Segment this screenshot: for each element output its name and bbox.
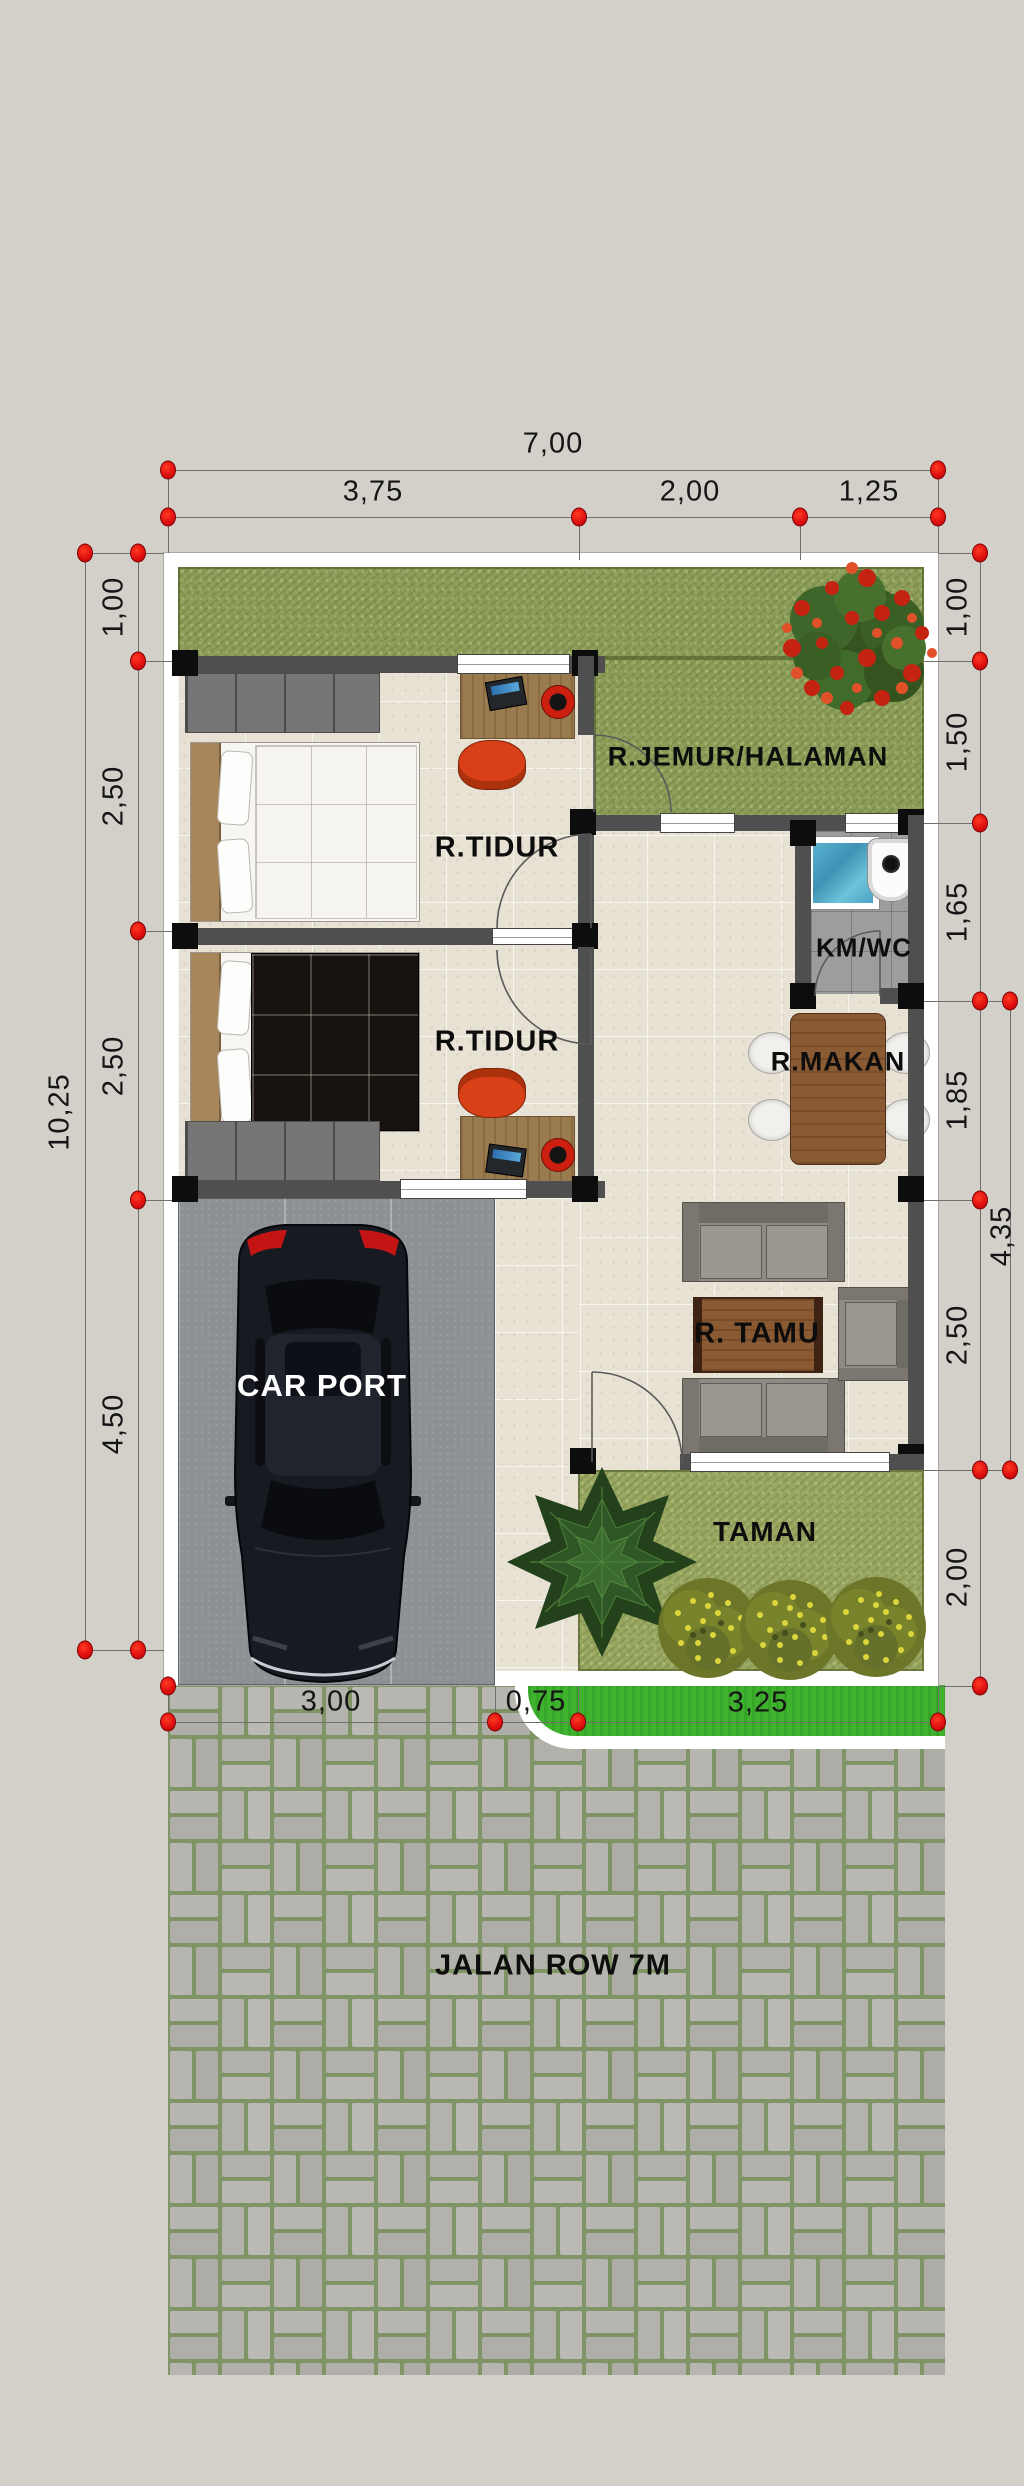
dimension-marker <box>930 461 946 480</box>
dimension-marker <box>130 544 146 563</box>
dimension-marker <box>1002 992 1018 1011</box>
dimension-line <box>168 1722 938 1723</box>
dimension-line <box>85 553 164 554</box>
dimension-marker <box>487 1713 503 1732</box>
dim-left-total: 10,25 <box>44 1073 77 1151</box>
dim-right-seg2: 1,50 <box>942 712 975 772</box>
car <box>225 1218 421 1688</box>
dimension-marker <box>972 814 988 833</box>
dim-bottom-seg2: 0,75 <box>506 1686 566 1719</box>
dim-left-seg4: 4,50 <box>98 1394 131 1454</box>
dim-top-seg1: 3,75 <box>343 476 403 509</box>
dimension-marker <box>792 508 808 527</box>
dimension-line <box>85 1650 164 1651</box>
dimension-line <box>168 470 938 471</box>
dim-top-seg2: 2,00 <box>660 476 720 509</box>
dimension-marker <box>130 1191 146 1210</box>
dimension-line <box>85 553 86 1650</box>
dim-right-seg6: 2,00 <box>942 1547 975 1607</box>
dim-right-seg5: 2,50 <box>942 1305 975 1365</box>
dimension-marker <box>130 652 146 671</box>
dimension-marker <box>972 652 988 671</box>
label-taman: TAMAN <box>713 1516 817 1548</box>
label-makan: R.MAKAN <box>771 1047 906 1078</box>
label-carport: CAR PORT <box>237 1368 407 1404</box>
dimension-marker <box>77 544 93 563</box>
dim-left-seg3: 2,50 <box>98 1036 131 1096</box>
dimension-marker <box>930 508 946 527</box>
dimension-marker <box>77 1641 93 1660</box>
dimension-marker <box>972 1677 988 1696</box>
dimension-marker <box>160 508 176 527</box>
floor-plan-canvas: R.JEMUR/HALAMAN R.TIDUR R.TIDUR KM/WC R.… <box>0 0 1024 2486</box>
dimension-line <box>980 553 981 1686</box>
dimension-line <box>138 553 139 1650</box>
dimension-marker <box>130 1641 146 1660</box>
dimension-marker <box>571 508 587 527</box>
dimension-marker <box>930 1713 946 1732</box>
dimension-marker <box>972 992 988 1011</box>
label-tidur1: R.TIDUR <box>435 832 560 865</box>
label-kmwc: KM/WC <box>816 933 912 964</box>
dim-top-total: 7,00 <box>523 428 583 461</box>
door-arcs <box>0 0 1024 2486</box>
dim-right-seg4: 1,85 <box>942 1070 975 1130</box>
dim-top-seg3: 1,25 <box>839 476 899 509</box>
bush <box>821 1572 931 1682</box>
dimension-marker <box>570 1713 586 1732</box>
dim-bottom-seg1: 3,00 <box>301 1686 361 1719</box>
dimension-marker <box>160 461 176 480</box>
dimension-marker <box>1002 1461 1018 1480</box>
dimension-marker <box>972 1461 988 1480</box>
dimension-marker <box>130 922 146 941</box>
dim-left-seg1: 1,00 <box>98 577 131 637</box>
dim-right-seg3: 1,65 <box>942 882 975 942</box>
dimension-line <box>168 517 938 518</box>
label-jalan: JALAN ROW 7M <box>435 1950 671 1983</box>
label-tamu: R. TAMU <box>694 1318 820 1351</box>
dimension-marker <box>160 1713 176 1732</box>
label-jemur: R.JEMUR/HALAMAN <box>608 742 889 773</box>
dimension-line <box>924 1470 1010 1471</box>
dim-right-seg1: 1,00 <box>942 577 975 637</box>
label-tidur2: R.TIDUR <box>435 1026 560 1059</box>
dim-right-outer: 4,35 <box>986 1206 1019 1266</box>
dimension-marker <box>972 544 988 563</box>
dimension-marker <box>160 1677 176 1696</box>
dim-bottom-seg3: 3,25 <box>728 1687 788 1720</box>
flower-tree <box>762 548 952 738</box>
dimension-line <box>924 1001 1010 1002</box>
dim-left-seg2: 2,50 <box>98 766 131 826</box>
